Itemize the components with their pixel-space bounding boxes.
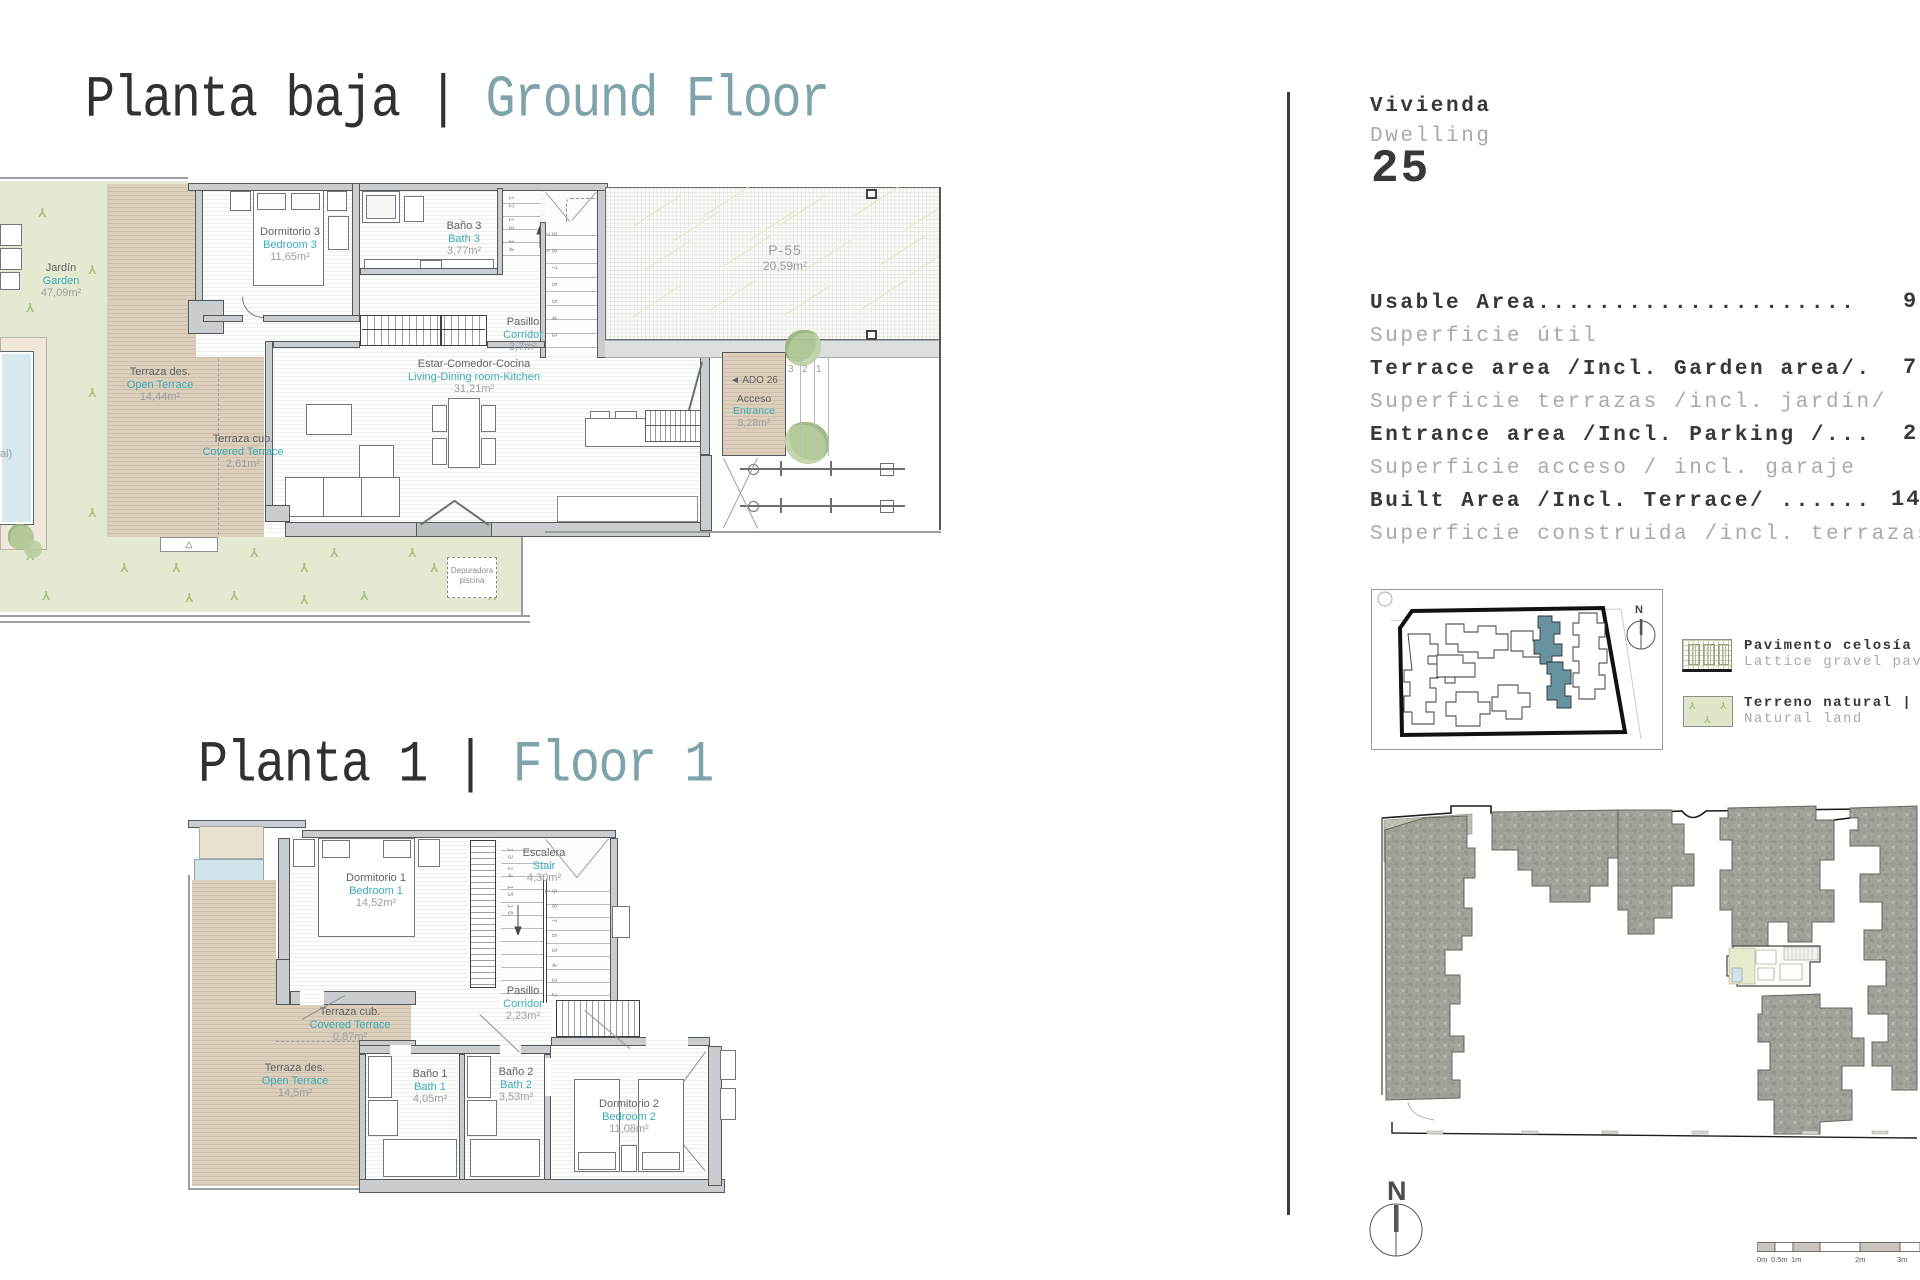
svg-text:3m: 3m <box>1897 1255 1907 1264</box>
svg-text:N: N <box>1635 604 1643 616</box>
svg-text:0m: 0m <box>1757 1255 1767 1264</box>
svg-text:0.5m: 0.5m <box>1771 1255 1788 1264</box>
svg-text:N: N <box>1387 1176 1407 1206</box>
svg-text:1m: 1m <box>1791 1255 1801 1264</box>
svg-text:2m: 2m <box>1855 1255 1865 1264</box>
